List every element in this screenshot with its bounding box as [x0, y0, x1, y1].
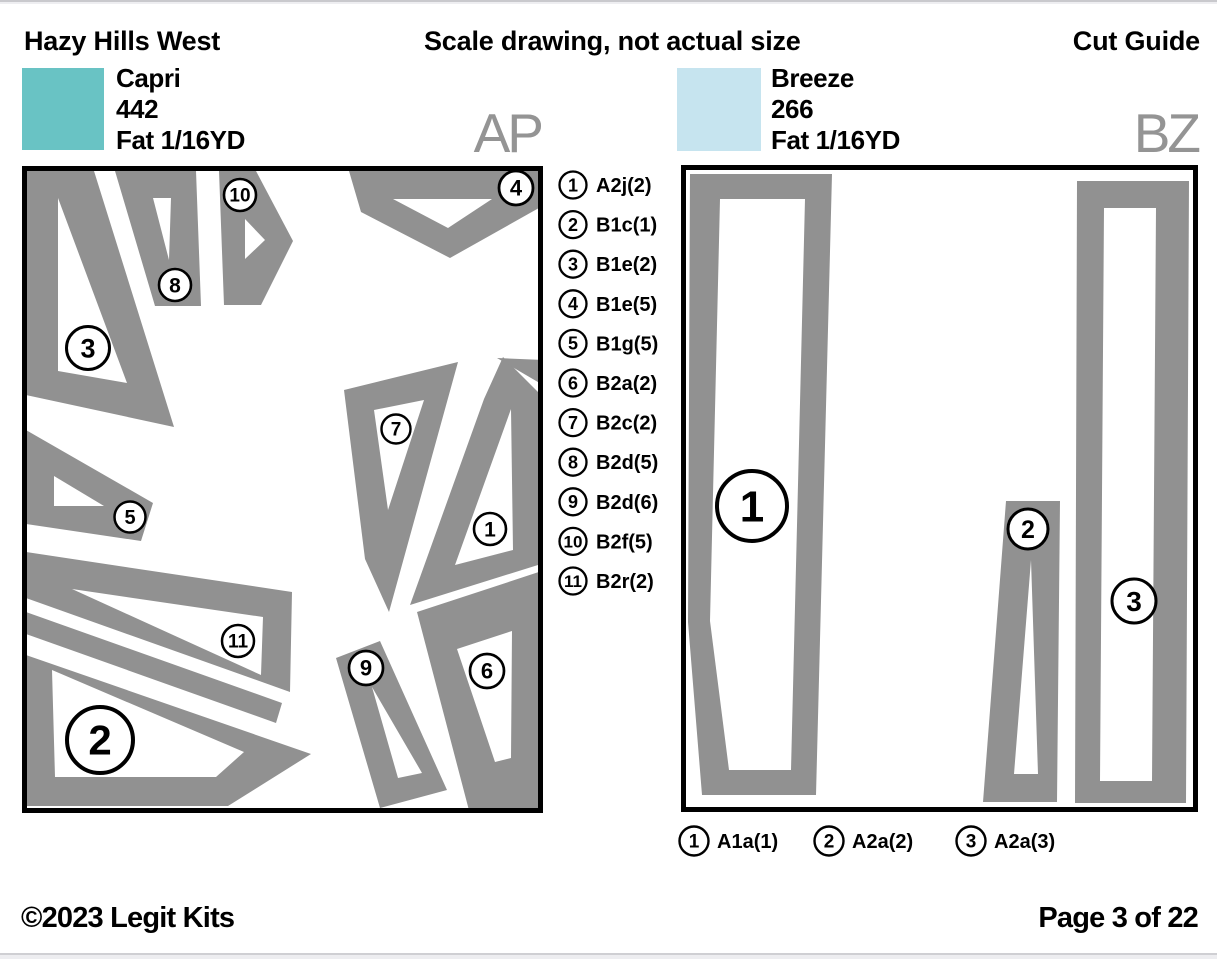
svg-text:1: 1 [568, 175, 578, 195]
svg-text:11: 11 [564, 572, 582, 591]
svg-text:7: 7 [568, 413, 578, 433]
svg-text:10: 10 [229, 186, 250, 207]
svg-text:B2d(5): B2d(5) [596, 452, 658, 474]
svg-text:1: 1 [484, 518, 496, 541]
svg-text:3: 3 [966, 832, 977, 853]
svg-text:3: 3 [1126, 586, 1142, 617]
svg-text:2: 2 [568, 215, 578, 235]
svg-text:9: 9 [360, 656, 372, 681]
svg-text:6: 6 [481, 659, 493, 684]
svg-text:1: 1 [689, 832, 700, 853]
svg-text:7: 7 [391, 420, 402, 441]
svg-text:8: 8 [568, 453, 578, 473]
svg-text:8: 8 [169, 274, 181, 297]
svg-text:11: 11 [228, 632, 249, 653]
svg-text:B1e(2): B1e(2) [596, 254, 657, 276]
svg-text:3: 3 [568, 255, 578, 275]
svg-text:A2a(2): A2a(2) [852, 831, 913, 853]
svg-text:2: 2 [1021, 516, 1035, 544]
svg-text:5: 5 [124, 507, 135, 529]
svg-text:B2f(5): B2f(5) [596, 531, 653, 553]
svg-text:2: 2 [88, 717, 111, 764]
svg-text:B2r(2): B2r(2) [596, 571, 654, 593]
svg-text:A2j(2): A2j(2) [596, 175, 652, 197]
svg-text:B1g(5): B1g(5) [596, 333, 658, 355]
svg-text:B2d(6): B2d(6) [596, 492, 658, 514]
svg-text:3: 3 [80, 333, 95, 363]
svg-text:5: 5 [568, 334, 578, 354]
svg-text:10: 10 [564, 532, 583, 551]
svg-text:B2a(2): B2a(2) [596, 373, 657, 395]
svg-text:B2c(2): B2c(2) [596, 413, 657, 435]
svg-text:4: 4 [510, 176, 523, 201]
svg-text:4: 4 [568, 294, 578, 314]
svg-text:B1c(1): B1c(1) [596, 215, 657, 237]
svg-text:2: 2 [824, 832, 835, 853]
svg-text:6: 6 [568, 373, 578, 393]
svg-text:1: 1 [740, 482, 764, 531]
svg-text:B1e(5): B1e(5) [596, 294, 657, 316]
svg-text:A2a(3): A2a(3) [994, 831, 1055, 853]
svg-text:9: 9 [568, 492, 578, 512]
svg-text:A1a(1): A1a(1) [717, 831, 778, 853]
